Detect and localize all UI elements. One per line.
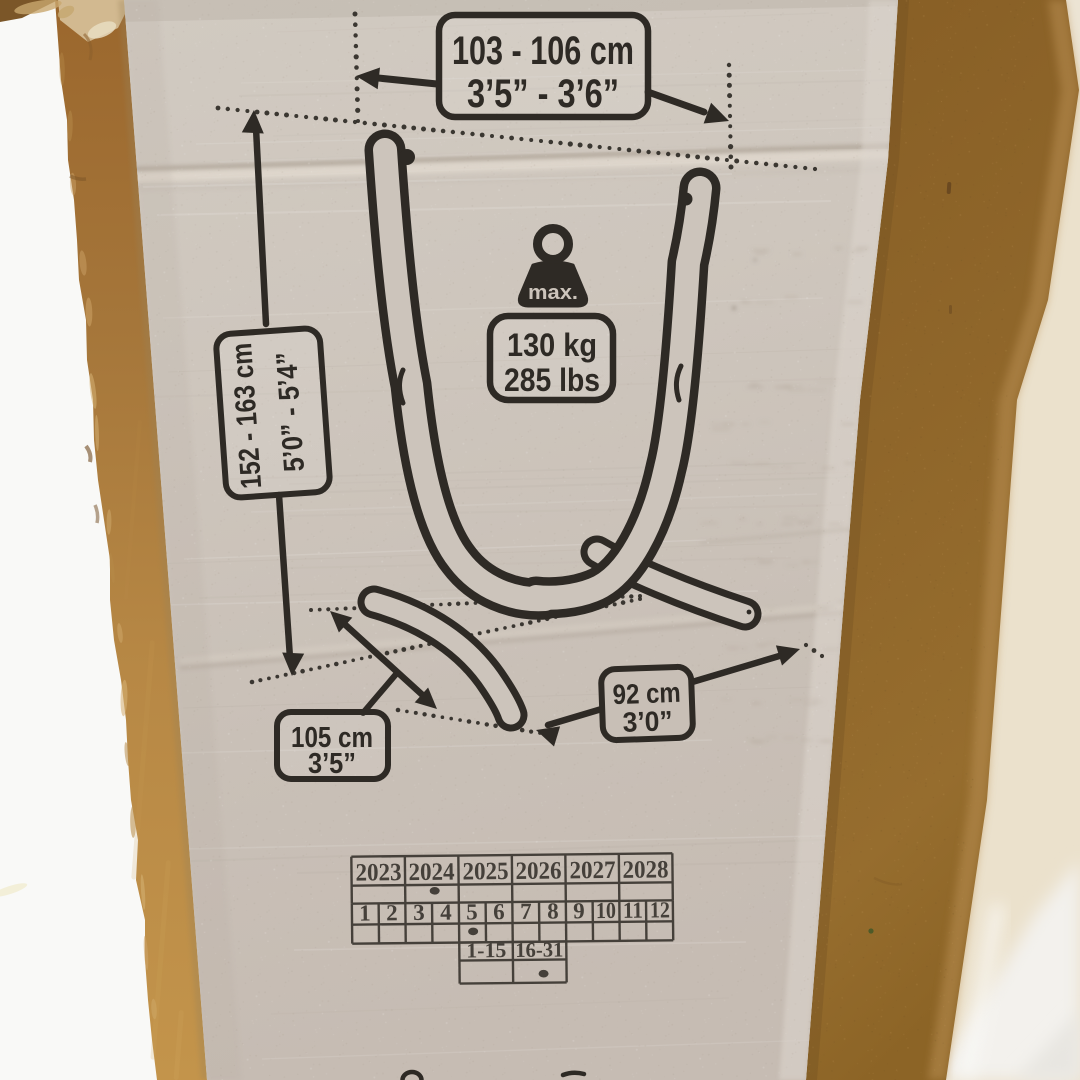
svg-text:103 - 106 cm: 103 - 106 cm — [452, 29, 634, 73]
svg-text:4: 4 — [440, 900, 452, 925]
svg-text:130 kg: 130 kg — [507, 327, 597, 363]
svg-text:11: 11 — [623, 898, 643, 923]
svg-text:6: 6 — [493, 899, 505, 924]
svg-text:10: 10 — [596, 898, 616, 923]
svg-text:5: 5 — [466, 899, 478, 924]
svg-text:1-15: 1-15 — [466, 938, 506, 962]
svg-text:2025: 2025 — [462, 858, 508, 885]
svg-text:1: 1 — [359, 900, 371, 925]
svg-text:16-31: 16-31 — [515, 937, 563, 962]
svg-text:285 lbs: 285 lbs — [504, 362, 600, 398]
svg-text:12: 12 — [650, 897, 670, 922]
svg-text:3’5”: 3’5” — [308, 748, 356, 780]
svg-text:2024: 2024 — [408, 859, 455, 886]
svg-text:7: 7 — [520, 899, 532, 924]
svg-text:9: 9 — [573, 898, 585, 923]
svg-text:3’5” - 3’6”: 3’5” - 3’6” — [467, 72, 619, 116]
svg-text:3’0”: 3’0” — [622, 705, 673, 738]
svg-text:2026: 2026 — [515, 857, 561, 884]
svg-text:max.: max. — [528, 282, 578, 304]
svg-text:8: 8 — [547, 899, 559, 924]
svg-text:2028: 2028 — [622, 856, 668, 883]
svg-text:3: 3 — [413, 900, 425, 925]
svg-text:2: 2 — [386, 900, 398, 925]
svg-text:2023: 2023 — [355, 859, 401, 886]
svg-text:2027: 2027 — [569, 857, 615, 884]
